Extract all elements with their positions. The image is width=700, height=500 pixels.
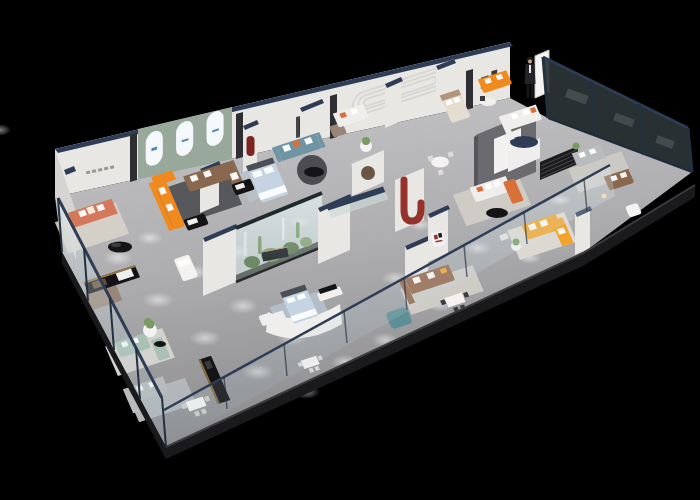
plant [144, 318, 152, 326]
red-logo-sign [431, 231, 445, 247]
pier [385, 77, 403, 128]
black-coffee-table [108, 242, 132, 253]
red-arch-niche [247, 136, 255, 156]
potted-plant [362, 137, 370, 145]
plant [573, 143, 580, 150]
showroom-render [0, 0, 700, 500]
showroom-scene [0, 0, 700, 500]
